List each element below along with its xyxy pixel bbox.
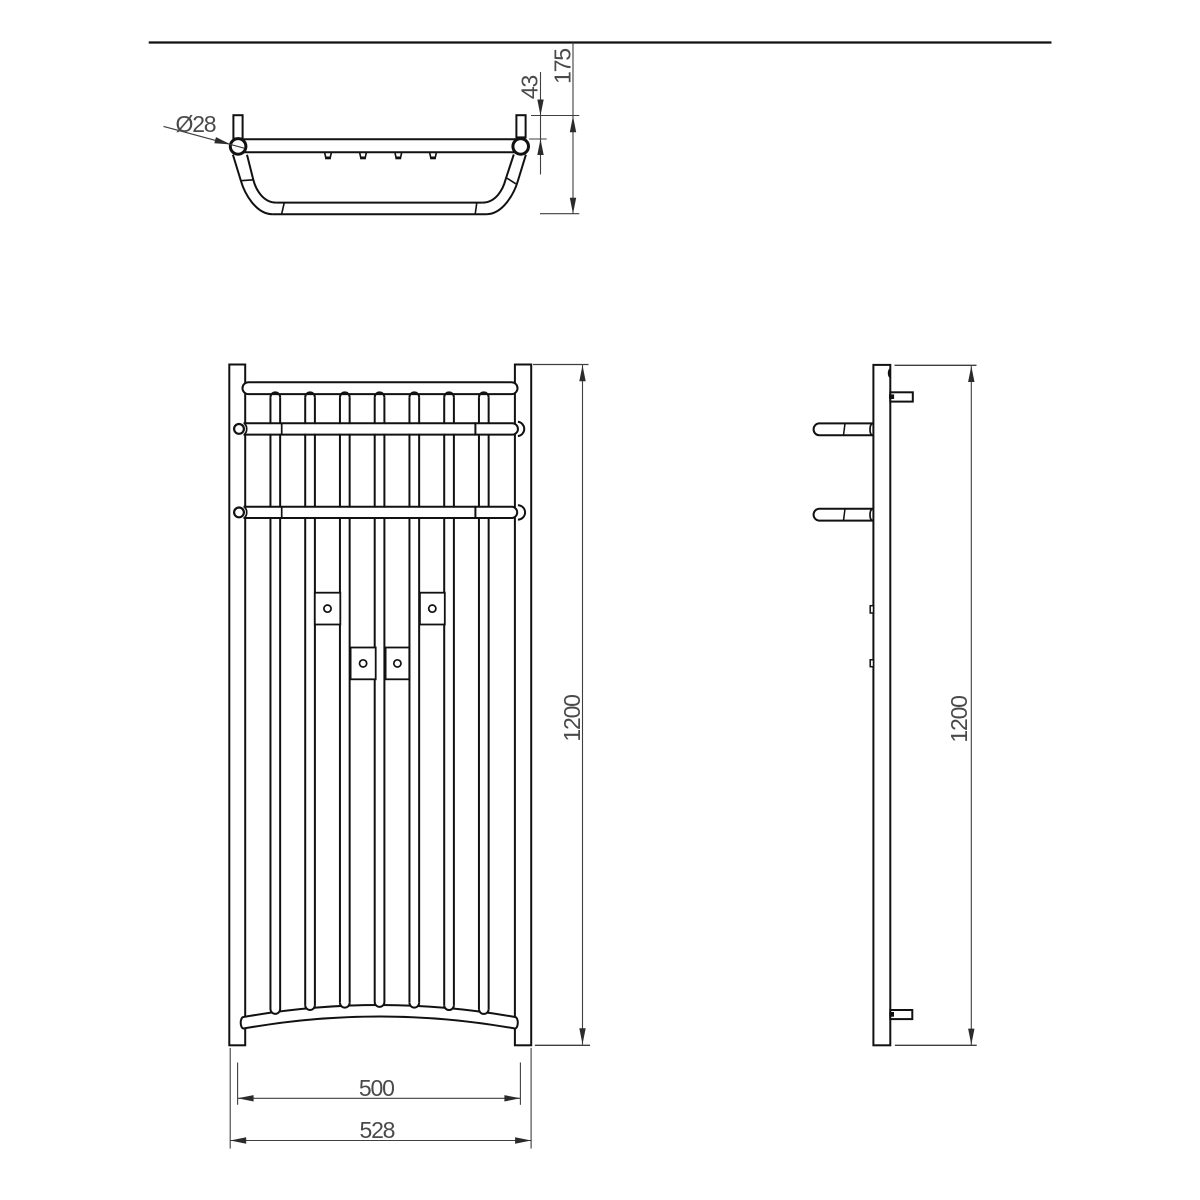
svg-text:1200: 1200 [559,695,585,742]
svg-text:43: 43 [517,76,543,100]
svg-text:500: 500 [359,1075,394,1101]
svg-text:528: 528 [360,1117,395,1143]
svg-text:1200: 1200 [946,696,972,743]
svg-text:Ø28: Ø28 [176,111,216,137]
svg-text:175: 175 [550,49,576,84]
